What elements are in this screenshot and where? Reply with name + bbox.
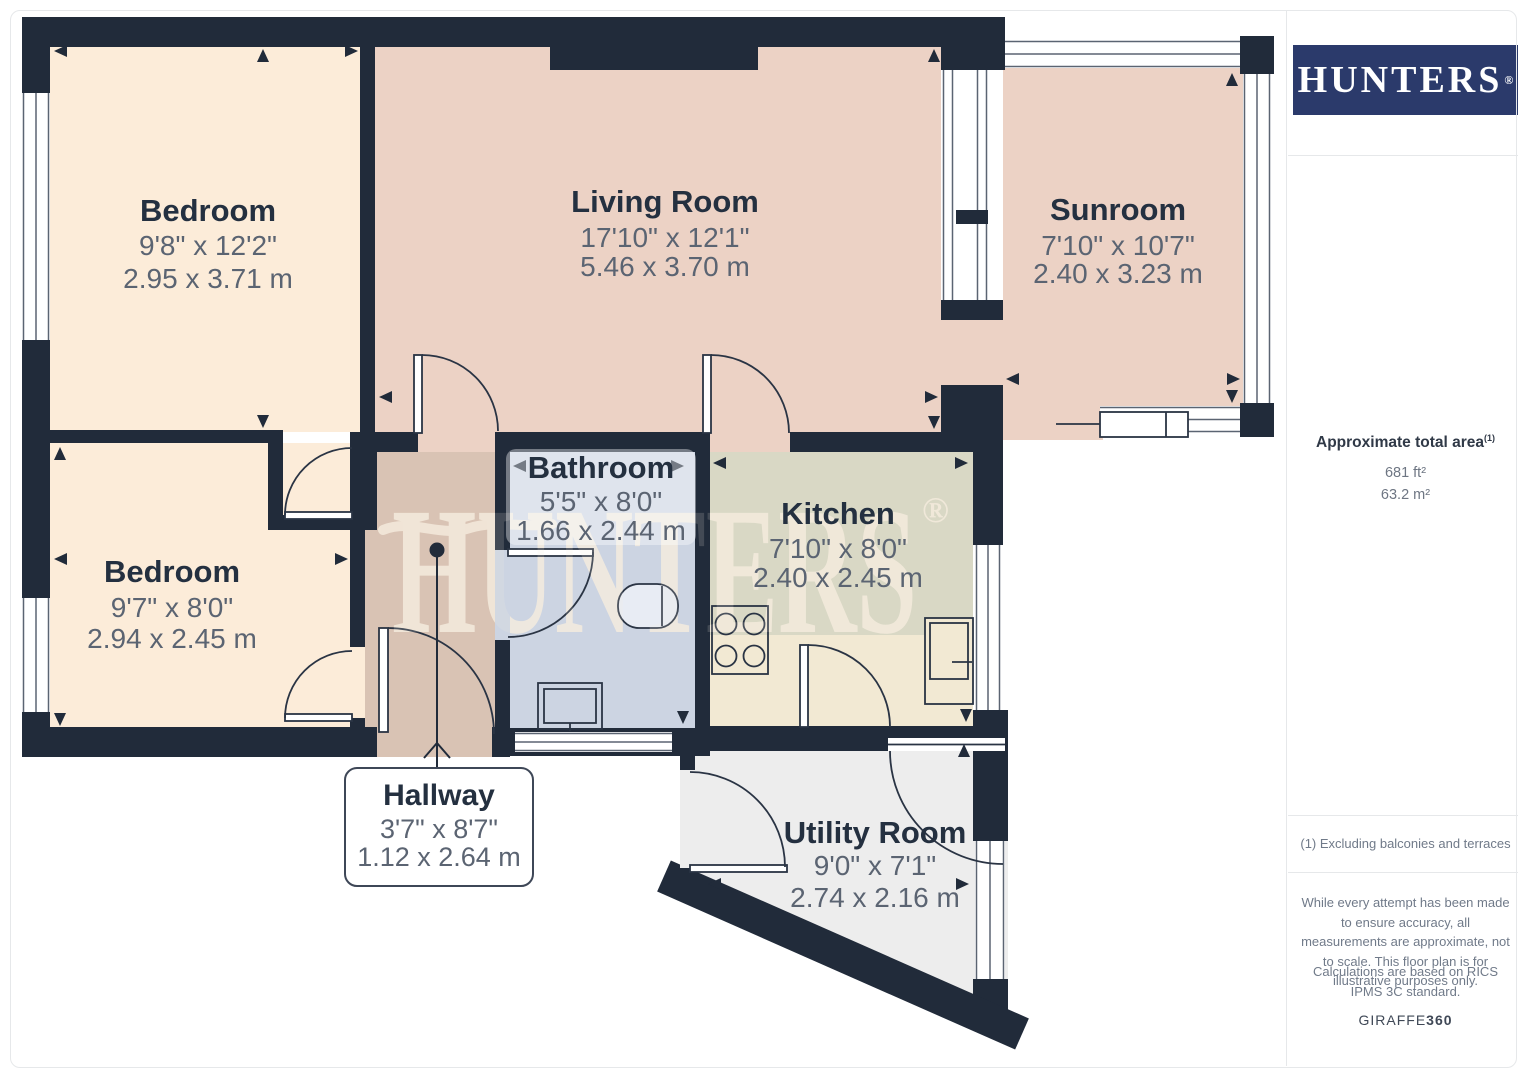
info-sidebar: HUNTERS® Approximate total area(1) 681 f… — [1286, 10, 1518, 1066]
divider — [1288, 155, 1518, 156]
room-dim-imperial: 9'0" x 7'1" — [814, 850, 936, 881]
sunroom-label: Sunroom 7'10" x 10'7" 2.40 x 3.23 m — [1033, 192, 1203, 289]
living-room-label: Living Room 17'10" x 12'1" 5.46 x 3.70 m — [571, 184, 759, 282]
sunroom-doorway — [941, 320, 1003, 385]
registered-icon: ® — [1504, 73, 1513, 88]
standard-note: Calculations are based on RICS IPMS 3C s… — [1300, 962, 1511, 1001]
room-title: Hallway — [383, 779, 495, 812]
bedroom2-label: Bedroom 9'7" x 8'0" 2.94 x 2.45 m — [87, 554, 257, 654]
room-dim-metric: 2.95 x 3.71 m — [123, 263, 293, 294]
room-dim-imperial: 3'7" x 8'7" — [380, 814, 498, 844]
kitchen-sink-unit-icon — [925, 618, 973, 704]
hallway-entrance-floor — [377, 727, 492, 757]
bedroom1-label: Bedroom 9'8" x 12'2" 2.95 x 3.71 m — [123, 193, 293, 294]
room-dim-imperial: 7'10" x 8'0" — [769, 533, 907, 564]
room-title: Kitchen — [781, 496, 895, 531]
giraffe360-credit: GIRAFFE360 — [1293, 1012, 1518, 1028]
room-dim-metric: 2.74 x 2.16 m — [790, 882, 960, 913]
total-area-imperial: 681 ft² — [1293, 462, 1518, 484]
sunroom-top-window-icon — [1005, 40, 1240, 68]
room-dim-imperial: 9'7" x 8'0" — [111, 592, 233, 623]
area-footnote: (1) Excluding balconies and terraces — [1293, 836, 1518, 851]
sunroom-east-window-icon — [1243, 74, 1271, 403]
room-title: Bedroom — [104, 554, 240, 589]
room-title: Sunroom — [1050, 192, 1186, 227]
footnote-marker: (1) — [1484, 433, 1495, 443]
logo-text: HUNTERS — [1298, 58, 1503, 102]
room-title: Utility Room — [784, 815, 967, 850]
sunroom-floor-strip — [1003, 406, 1103, 440]
room-dim-imperial: 17'10" x 12'1" — [580, 222, 749, 253]
room-dim-metric: 5.46 x 3.70 m — [580, 251, 750, 282]
room-dim-imperial: 9'8" x 12'2" — [139, 230, 277, 261]
kitchen-window-icon — [975, 545, 1001, 710]
bedroom2-window-icon — [22, 598, 50, 712]
floor-plan: HUNTERS ® — [0, 0, 1285, 1080]
total-area-metric: 63.2 m² — [1293, 484, 1518, 506]
watermark-registered-icon: ® — [922, 490, 949, 530]
room-title: Living Room — [571, 184, 759, 219]
room-dim-metric: 2.40 x 2.45 m — [753, 562, 923, 593]
bathroom-window-icon — [515, 732, 672, 752]
room-dim-imperial: 7'10" x 10'7" — [1041, 230, 1195, 261]
room-dim-metric: 1.66 x 2.44 m — [516, 515, 686, 546]
room-dim-metric: 2.40 x 3.23 m — [1033, 258, 1203, 289]
hunters-logo: HUNTERS® — [1293, 45, 1518, 115]
room-dim-metric: 2.94 x 2.45 m — [87, 623, 257, 654]
leader-dot — [430, 543, 445, 558]
room-title: Bathroom — [528, 450, 674, 485]
room-dim-metric: 1.12 x 2.64 m — [357, 842, 521, 872]
room-dim-imperial: 5'5" x 8'0" — [540, 486, 662, 517]
divider — [1288, 872, 1518, 873]
total-area-title: Approximate total area(1) — [1293, 433, 1518, 452]
divider — [1288, 815, 1518, 816]
bedroom1-window-icon — [22, 93, 50, 340]
total-area-block: Approximate total area(1) 681 ft² 63.2 m… — [1293, 433, 1518, 506]
vestibule-floor — [283, 443, 350, 515]
room-title: Bedroom — [140, 193, 276, 228]
living-sunroom-window-icon — [941, 70, 1003, 300]
bathroom-label: Bathroom 5'5" x 8'0" 1.66 x 2.44 m — [506, 449, 696, 546]
